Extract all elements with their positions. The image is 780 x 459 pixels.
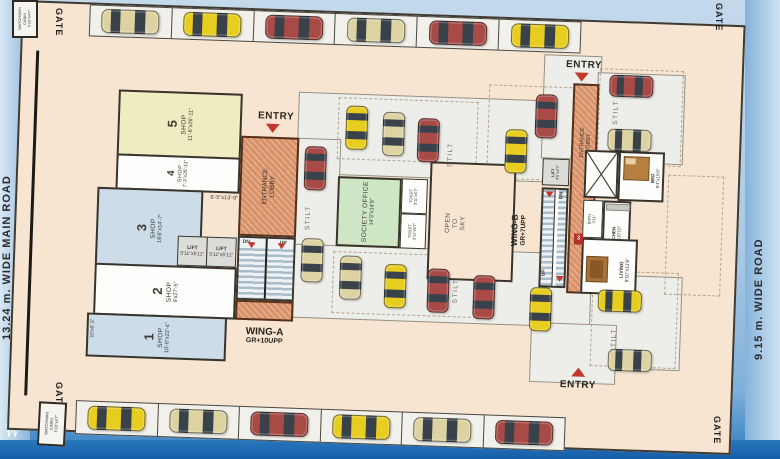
table-icon — [590, 260, 604, 278]
lift-wing-a-2: LIFT 5'11"x5'11" — [206, 237, 237, 268]
bathroom: BATH 3'11" — [582, 200, 603, 239]
lift-wing-a-1: LIFT 5'11"x5'11" — [177, 236, 208, 267]
car-red — [265, 15, 324, 41]
lift-wing-b: LIFT 4'5"x4'7" — [542, 158, 570, 186]
gate-bottom-right: GATE — [712, 416, 722, 450]
lift-dim: 4'5"x4'7" — [556, 165, 561, 180]
shop-1-number: 1 — [141, 321, 157, 352]
street-parking-stall — [90, 5, 173, 38]
car-yellow — [183, 12, 242, 38]
stilt-label: STILT — [446, 137, 455, 173]
street-parking-stall — [76, 401, 159, 436]
car-beige — [347, 17, 406, 43]
bed-dim: 9'4"x10'6" — [654, 158, 661, 198]
entry-label-wing-a: ENTRY — [246, 110, 306, 123]
kitchen-platform-icon — [606, 204, 630, 212]
shop-5: 5 SHOP 11'-6"x26'-11" — [117, 89, 243, 159]
parking-bay-outline — [337, 97, 479, 164]
entry-label-bottom: ENTRY — [543, 378, 613, 391]
street-parking-stall — [320, 410, 403, 445]
stairs-dn-label: DN — [559, 192, 565, 199]
shop-5-dim: 11'-6"x26'-11" — [187, 108, 194, 141]
staircase-wing-a: DN UP — [236, 236, 296, 302]
street-parking-stall — [253, 11, 336, 44]
car-beige — [413, 417, 472, 443]
floor-plan-page: 13.24 m. WIDE MAIN ROAD 9.15 m. WIDE ROA… — [0, 0, 780, 459]
stair-flight — [238, 248, 266, 299]
street-parking-stall — [402, 413, 485, 448]
duct-x-icon — [586, 152, 618, 197]
street-parking-stall — [239, 407, 322, 442]
living-dim: 9'10"x11'6" — [624, 247, 631, 293]
open-to-sky-court: OPEN TO SKY — [426, 161, 516, 282]
toilet-1: TOILET 3'11"x6'7" — [401, 178, 428, 214]
bath-dim: 3'11" — [593, 214, 598, 225]
gate-top-right: GATE — [714, 3, 724, 37]
street-parking-stall — [335, 14, 418, 47]
entrance-lobby-label: ENTRANCE — [261, 169, 270, 205]
watchman-cabin-dim: 5'10"x4'7" — [54, 413, 60, 436]
car-red — [495, 420, 554, 446]
staircase-wing-b: DN UP — [538, 187, 568, 288]
living-room: LIVING 9'10"x11'6" — [580, 238, 638, 296]
stilt-label: STILT — [451, 273, 460, 309]
flat-number-badge: 3 — [574, 233, 583, 244]
watchman-cabin-bottom: WATCHMAN CABIN 5'10"x4'7" — [37, 401, 67, 446]
shop-3-dim: 18'6"x14'-7" — [157, 213, 164, 242]
shop-4-dim: 7'-3"x26'-11" — [184, 160, 191, 188]
lift-dim: 5'11"x5'11" — [180, 251, 204, 258]
car-beige — [169, 408, 228, 434]
bedroom: BED 9'4"x10'6" — [617, 151, 665, 203]
society-office: SOCIETY OFFICE 14'3"x14'9" — [336, 176, 402, 248]
stairs-dn-arrow — [247, 242, 255, 248]
entrance-lobby-wing-a: ENTRANCE LOBBY — [238, 136, 299, 238]
stilt-label: STILT — [304, 200, 313, 236]
car-yellow — [87, 406, 146, 432]
duct — [583, 150, 619, 199]
watchman-cabin-dim: 5'10"x4'7" — [27, 7, 32, 30]
gate-top-left: GATE — [54, 8, 64, 42]
stilt-label: STILT — [610, 323, 619, 359]
plot: 5 SHOP 11'-6"x26'-11" 4 SHOP 7'-3"x26'-1… — [7, 0, 746, 455]
stair-rail — [551, 190, 558, 286]
stair-flight — [266, 249, 294, 300]
street-parking-stall — [417, 17, 500, 50]
toilet-dim: 3'11"x6'7" — [414, 188, 419, 205]
entry-arrow-bottom — [571, 367, 585, 376]
open-to-sky-label: SKY — [458, 188, 468, 258]
street-parking-stall — [157, 404, 240, 439]
shop-1-extra-dim: 10'x6'-3" — [90, 319, 96, 338]
toilet-dim: 3'11"x6'7" — [413, 223, 418, 240]
wing-b-title: WING-B GR+7UPP — [509, 194, 529, 267]
entry-label-wing-b-top: ENTRY — [554, 59, 614, 72]
entry-arrow-wing-a — [266, 124, 280, 133]
watchman-cabin-top: WATCHMAN CABIN 5'10"x4'7" — [12, 0, 38, 38]
shop-3-number: 3 — [134, 213, 150, 242]
shop-2: 2 SHOP 9'x27'-5" — [93, 263, 237, 320]
wing-a-landing — [235, 300, 294, 322]
shop-1: 1 SHOP 10'-6"x22'-4" 10'x6'-3" — [86, 312, 227, 361]
stairs-up-label: UP — [542, 269, 548, 276]
pillow-icon — [626, 158, 636, 164]
compound-wall — [24, 51, 39, 396]
parking-bay-outline — [664, 175, 724, 297]
toilet-2: TOILET 3'11"x6'7" — [400, 213, 427, 249]
shop-1-dim: 10'-6"x22'-4" — [164, 322, 171, 353]
shop-3-label: SHOP — [149, 213, 157, 242]
road-right-label: 9.15 m. WIDE ROAD — [753, 110, 765, 360]
shop-2-label: SHOP — [165, 281, 173, 302]
car-yellow — [510, 23, 569, 49]
shop-2-number: 2 — [150, 280, 166, 301]
car-beige — [101, 9, 160, 35]
street-parking-top — [89, 4, 582, 53]
street-parking-stall — [499, 20, 581, 53]
lift-dim: 5'11"x5'11" — [209, 252, 233, 259]
street-parking-stall — [172, 8, 255, 41]
car-red — [250, 411, 309, 437]
car-yellow — [332, 414, 391, 440]
stairs-up-arrow — [277, 243, 285, 249]
wing-a-title: WING-A GR+10UPP — [216, 325, 313, 346]
stairs-dn-arrow — [545, 191, 553, 197]
stilt-label: STILT — [612, 95, 621, 131]
street-parking-stall — [483, 415, 565, 450]
car-red — [428, 20, 487, 46]
stairs-up-arrow — [555, 276, 563, 282]
shop-2-dim: 9'x27'-5" — [173, 281, 180, 302]
shop-5-number: 5 — [165, 108, 181, 142]
entry-arrow-wing-b-top — [574, 72, 588, 81]
